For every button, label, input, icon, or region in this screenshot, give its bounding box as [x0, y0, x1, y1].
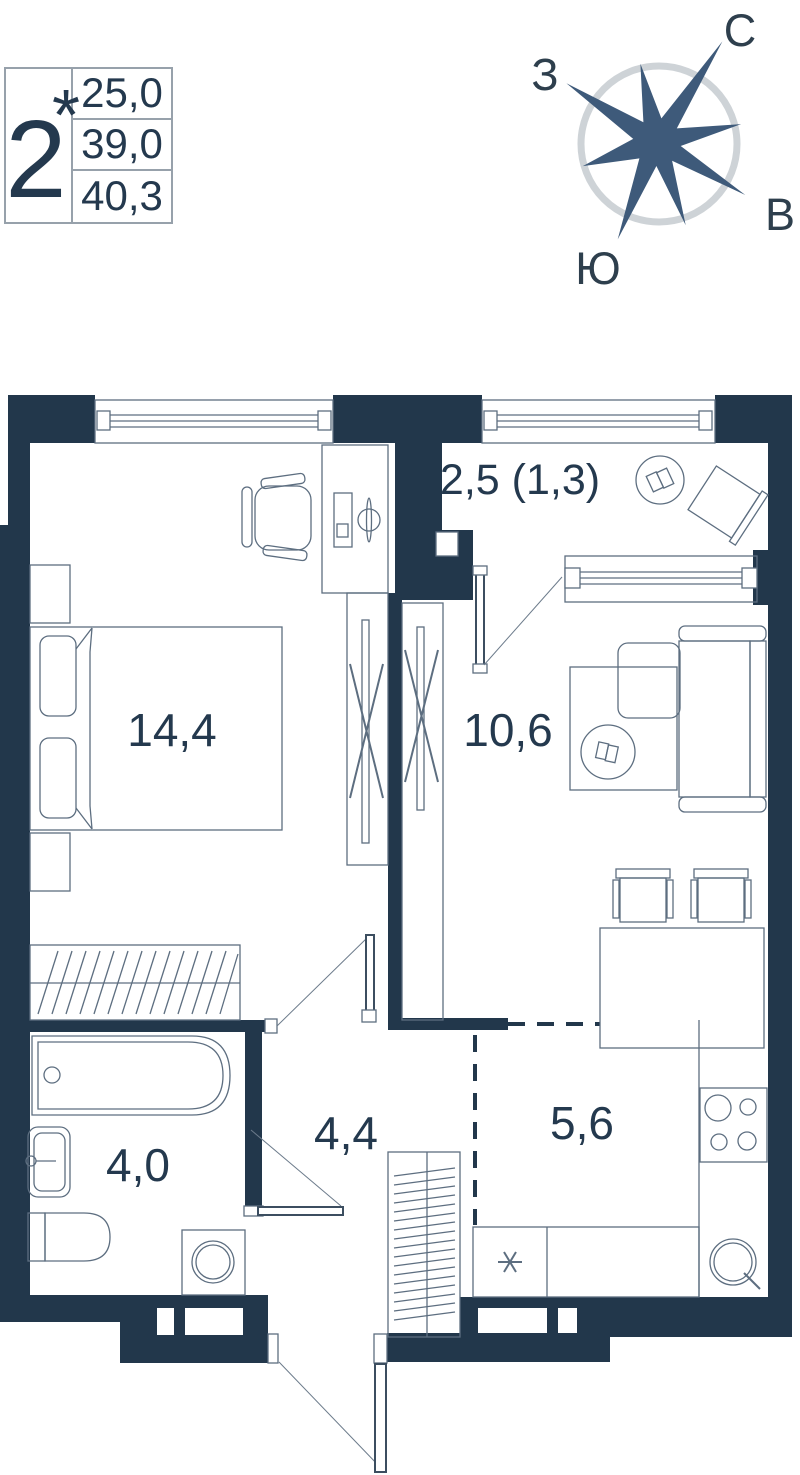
- wall-top-left: [8, 395, 95, 443]
- washer-drum-inner: [196, 1245, 230, 1279]
- bedroom-area-label: 14,4: [127, 704, 217, 756]
- sofa-back: [750, 641, 766, 797]
- duct-inset-2: [185, 1308, 243, 1335]
- fridge-asterisk-icon: [498, 1252, 522, 1272]
- dining-chair-icon: [691, 869, 751, 922]
- entrance-door-leaf: [375, 1364, 386, 1472]
- entrance-door: [268, 1334, 387, 1472]
- chair-backrest: [242, 487, 252, 547]
- area-value-main: 39,0: [81, 120, 163, 167]
- balcony-chair-icon: [686, 463, 768, 545]
- compass-label-east: В: [765, 189, 795, 240]
- wall-top-right: [715, 395, 792, 443]
- chair-side: [745, 880, 751, 918]
- bedroom-window-cap: [318, 411, 331, 430]
- dining-chair-icon: [613, 869, 673, 922]
- duct-inset-1: [157, 1308, 174, 1335]
- wall-left-upper: [8, 443, 30, 529]
- apartment-info-box: 2 * 25,0 39,0 40,3: [5, 68, 172, 223]
- toilet-bowl: [45, 1213, 110, 1261]
- bedroom-closet-icon: [30, 945, 240, 1020]
- sink-icon: [26, 1127, 70, 1197]
- entrance-door-jamb: [374, 1334, 387, 1363]
- pc-tower-icon: [334, 493, 352, 547]
- chair-armrest: [263, 545, 308, 561]
- balcony-door-jamb: [473, 664, 487, 673]
- coffee-table: [581, 725, 635, 779]
- burner: [705, 1095, 731, 1121]
- pc-body: [334, 493, 352, 547]
- compass-rose: С З В Ю: [531, 5, 795, 294]
- chair-backrest: [729, 491, 768, 545]
- bedroom-door-swing: [277, 937, 368, 1026]
- office-chair-icon: [242, 473, 311, 561]
- table-book: [646, 467, 674, 493]
- bedroom-window-cap: [97, 411, 110, 430]
- living-balcony-window: [565, 556, 757, 602]
- toilet-tank: [28, 1213, 45, 1261]
- chair-backrest: [694, 869, 748, 878]
- chair-side: [667, 880, 673, 918]
- nightstand-bottom: [30, 833, 70, 891]
- sofa-armrest: [679, 797, 766, 812]
- balcony-area-label: 2,5 (1,3): [440, 456, 600, 504]
- compass-label-south: Ю: [575, 243, 620, 294]
- wardrobe-bedroom-side-icon: [347, 593, 388, 865]
- bedroom-door-jamb: [265, 1019, 277, 1033]
- entrance-door-jamb: [268, 1334, 278, 1363]
- chair-seat: [620, 878, 666, 922]
- table-mirror-icon: [358, 498, 380, 542]
- stove-body: [700, 1088, 767, 1162]
- hall-area-label: 4,4: [314, 1107, 378, 1159]
- wardrobe-hangers: [394, 1168, 455, 1320]
- wall-top-center: [333, 395, 482, 443]
- chair-seat: [255, 486, 311, 550]
- wall-niche: [436, 532, 458, 556]
- bedroom-door: [265, 935, 376, 1033]
- wall-right: [768, 443, 792, 1337]
- pc-detail: [337, 524, 348, 537]
- wall-bedroom-living: [388, 593, 402, 1030]
- compass-star-icon: [566, 41, 745, 239]
- bedroom-door-jamb: [362, 1010, 376, 1022]
- wall-bedroom-bathroom: [30, 1020, 265, 1032]
- pillow: [40, 738, 76, 818]
- balcony-window-top: [482, 395, 715, 443]
- area-value-total: 40,3: [81, 172, 163, 219]
- room-count-asterisk: *: [52, 76, 80, 156]
- duvet-fold: [76, 628, 92, 829]
- wall-left: [0, 525, 30, 1322]
- balcony-door: [473, 566, 562, 673]
- kitchen-sink-icon: [710, 1239, 760, 1289]
- chair-backrest: [616, 869, 670, 878]
- entrance-door-swing: [279, 1362, 379, 1466]
- balcony-window-band: [482, 395, 715, 443]
- toilet-icon: [28, 1213, 110, 1261]
- chair-seat: [698, 878, 744, 922]
- burner: [711, 1134, 727, 1150]
- balcony-table-icon: [636, 456, 684, 504]
- hall-wardrobe-icon: [388, 1152, 460, 1337]
- balcony-furniture: [636, 456, 768, 545]
- nightstand-top: [30, 565, 70, 623]
- area-value-living: 25,0: [81, 69, 163, 116]
- chair-side: [691, 880, 697, 918]
- balcony-door-swing: [484, 577, 562, 665]
- kitchen-furniture: [473, 1020, 767, 1297]
- bathtub-outer: [32, 1036, 230, 1115]
- bedroom-window-band: [95, 395, 333, 443]
- desk: [322, 445, 388, 593]
- living-area-label: 10,6: [463, 704, 553, 756]
- balcony-window-cap: [484, 411, 497, 430]
- balcony-door-leaf: [476, 572, 484, 667]
- duct-inset-3: [478, 1308, 547, 1333]
- sofa-armrest: [679, 626, 766, 641]
- burner: [738, 1132, 756, 1150]
- balcony-door-jamb: [473, 566, 487, 575]
- sofa-icon: [618, 626, 766, 812]
- bedroom-door-leaf: [366, 935, 374, 1012]
- floor-plan-canvas: 2 * 25,0 39,0 40,3 С З В Ю: [0, 0, 800, 1475]
- dining-table: [600, 928, 764, 1048]
- washer-drum: [192, 1241, 234, 1283]
- wall-balcony-divider-block: [395, 530, 473, 600]
- floor-plan-page: 2 * 25,0 39,0 40,3 С З В Ю: [0, 0, 800, 1475]
- inner-window-frame: [565, 556, 757, 602]
- inner-window-cap: [742, 568, 757, 588]
- mirror-blade: [367, 498, 372, 542]
- pillow: [40, 636, 76, 716]
- balcony-window-cap: [699, 411, 712, 430]
- living-furniture: [570, 626, 766, 1048]
- burner: [740, 1099, 756, 1115]
- compass-label-west: З: [531, 49, 558, 100]
- wall-balcony-divider-stem: [395, 437, 442, 530]
- table-book: [595, 742, 618, 763]
- coffee-table-icon: [581, 725, 635, 779]
- stove-icon: [700, 1088, 767, 1162]
- bathtub-inner: [38, 1042, 223, 1109]
- wardrobe-living-side-icon: [402, 603, 443, 1020]
- bedroom-window: [95, 395, 333, 443]
- bathtub-drain: [44, 1067, 60, 1083]
- chair-seat: [688, 466, 760, 538]
- chair-side: [613, 880, 619, 918]
- rug: [570, 667, 677, 790]
- compass-label-north: С: [724, 5, 757, 56]
- bathroom-area-label: 4,0: [106, 1139, 170, 1191]
- sofa-seat: [679, 641, 750, 797]
- walls: [0, 395, 792, 1363]
- bathtub-icon: [32, 1036, 230, 1115]
- wall-hall-bathroom: [245, 1032, 262, 1207]
- kitchen-area-label: 5,6: [550, 1097, 614, 1149]
- bathroom-door-leaf: [258, 1207, 343, 1215]
- sink-inner: [34, 1133, 65, 1191]
- sofa-chaise: [618, 643, 680, 718]
- mirror-circle: [358, 509, 380, 531]
- inner-window-cap: [565, 568, 580, 588]
- washing-machine-icon: [182, 1230, 245, 1295]
- duct-inset-4: [558, 1308, 577, 1333]
